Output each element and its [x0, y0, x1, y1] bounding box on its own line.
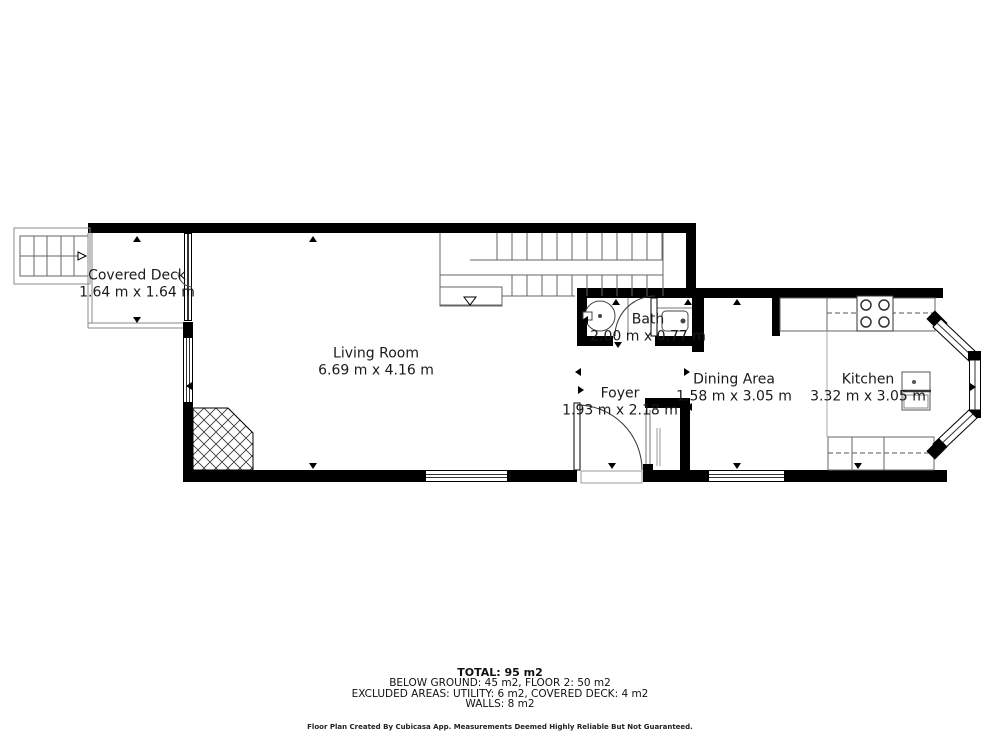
burner	[879, 317, 889, 327]
dimension-arrow	[608, 463, 616, 469]
room-label-dining-area: Dining Area 1.58 m x 3.05 m	[676, 372, 792, 405]
disclaimer-text: Floor Plan Created By Cubicasa App. Meas…	[0, 723, 1000, 731]
floor-plan: Covered Deck 1.64 m x 1.64 m Living Room…	[0, 0, 1000, 750]
burner	[861, 317, 871, 327]
corner-fireplace	[193, 408, 253, 470]
room-label-kitchen: Kitchen 3.32 m x 3.05 m	[810, 372, 926, 405]
room-label-covered-deck: Covered Deck 1.64 m x 1.64 m	[79, 268, 195, 301]
room-name: Foyer	[562, 386, 678, 403]
dimension-arrow	[133, 236, 141, 242]
stove	[857, 296, 893, 331]
burner	[879, 300, 889, 310]
area-summary: TOTAL: 95 m2 BELOW GROUND: 45 m2, FLOOR …	[0, 667, 1000, 731]
dimension-arrow	[684, 299, 692, 305]
dimension-arrow	[309, 463, 317, 469]
burner	[861, 300, 871, 310]
dimension-arrow	[309, 236, 317, 242]
room-dimensions: 1.64 m x 1.64 m	[79, 284, 195, 301]
summary-line: BELOW GROUND: 45 m2, FLOOR 2: 50 m2	[0, 678, 1000, 689]
room-name: Kitchen	[810, 372, 926, 389]
dimension-arrow	[733, 299, 741, 305]
front-door-threshold	[581, 471, 642, 483]
room-dimensions: 1.93 m x 2.18 m	[562, 402, 678, 419]
dimension-arrow	[612, 299, 620, 305]
dimension-arrow	[854, 463, 862, 469]
room-dimensions: 3.32 m x 3.05 m	[810, 388, 926, 405]
dimension-arrow	[733, 463, 741, 469]
room-dimensions: 2.00 m x 0.77 m	[590, 328, 706, 345]
dimension-arrow	[133, 317, 141, 323]
stairs-direction-arrow	[78, 252, 86, 260]
room-label-foyer: Foyer 1.93 m x 2.18 m	[562, 386, 678, 419]
summary-line: WALLS: 8 m2	[0, 699, 1000, 710]
room-dimensions: 6.69 m x 4.16 m	[318, 362, 434, 379]
dimension-arrow	[186, 382, 192, 390]
stairs-down-arrow	[464, 297, 476, 305]
dimension-arrow	[575, 368, 581, 376]
room-name: Covered Deck	[79, 268, 195, 285]
room-name: Bath	[590, 312, 706, 329]
room-label-living-room: Living Room 6.69 m x 4.16 m	[318, 346, 434, 379]
room-dimensions: 1.58 m x 3.05 m	[676, 388, 792, 405]
room-label-bath: Bath 2.00 m x 0.77 m	[590, 312, 706, 345]
dimension-markers	[133, 236, 976, 469]
room-name: Dining Area	[676, 372, 792, 389]
room-name: Living Room	[318, 346, 434, 363]
interior-staircase	[440, 233, 663, 306]
